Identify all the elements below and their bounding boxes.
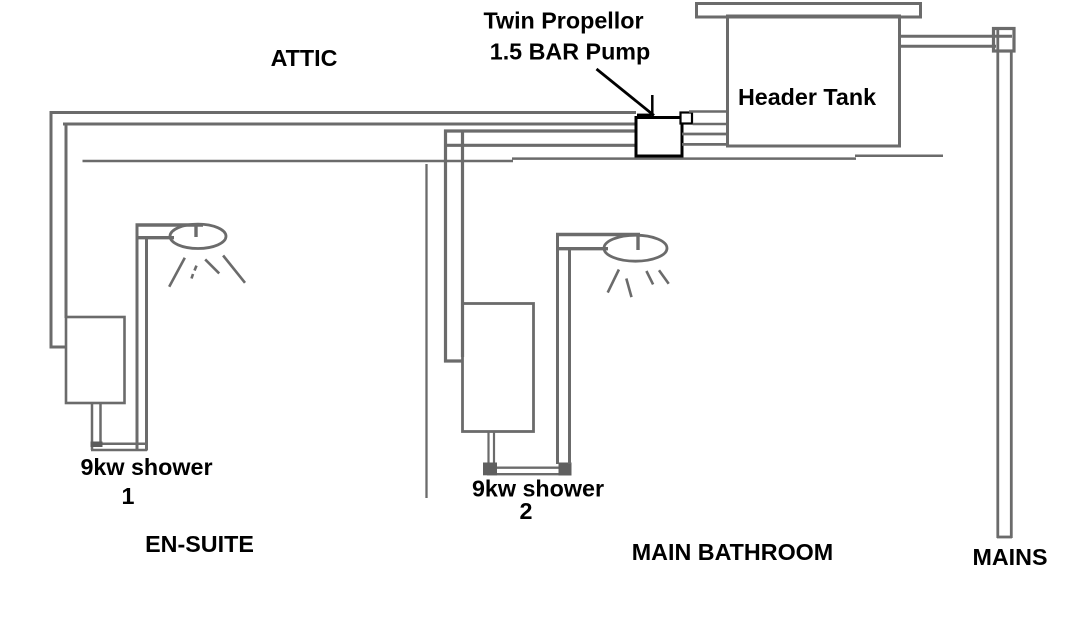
- svg-text:9kw shower: 9kw shower: [80, 454, 212, 480]
- svg-text:Twin Propellor: Twin Propellor: [483, 8, 643, 34]
- svg-text:2: 2: [520, 498, 533, 524]
- svg-text:ATTIC: ATTIC: [271, 45, 338, 71]
- svg-text:MAIN BATHROOM: MAIN BATHROOM: [632, 539, 833, 565]
- svg-text:9kw shower: 9kw shower: [472, 476, 604, 502]
- svg-text:1.5 BAR Pump: 1.5 BAR Pump: [490, 39, 651, 65]
- svg-text:Header Tank: Header Tank: [738, 84, 876, 110]
- svg-text:MAINS: MAINS: [972, 544, 1047, 570]
- svg-text:1: 1: [122, 483, 135, 509]
- svg-text:EN-SUITE: EN-SUITE: [145, 531, 254, 557]
